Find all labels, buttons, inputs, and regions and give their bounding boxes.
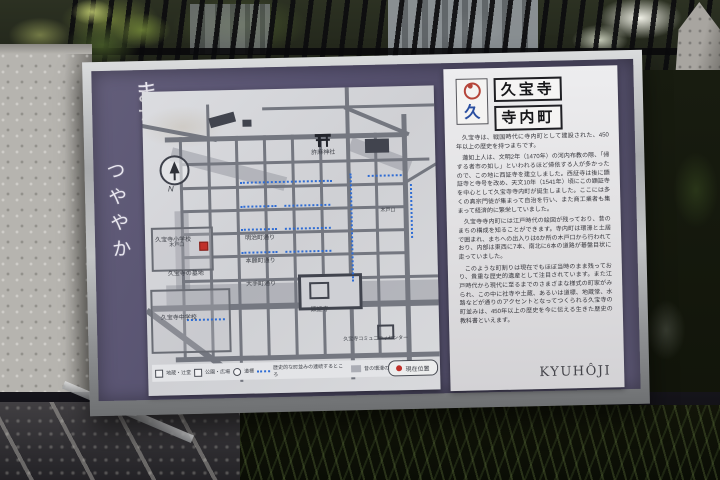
logo-kyu-character: 久 xyxy=(464,105,480,121)
description-text: 久宝寺は、戦国時代に寺内町として建設された、450年以上の歴史を持つまちです。 … xyxy=(456,131,613,329)
north-compass-icon xyxy=(159,155,190,186)
kyuhoji-logo-icon: 久 xyxy=(456,78,489,125)
granite-pillar-top xyxy=(0,44,92,54)
map-label-cemetery: 久宝寺の墓地 xyxy=(168,271,204,279)
current-location-legend: 現在位置 xyxy=(388,359,438,376)
map-street xyxy=(319,134,327,356)
current-location-label: 現在位置 xyxy=(405,363,429,373)
map-street xyxy=(374,133,382,355)
town-map: N 許麻神社 顕証寺 久宝寺小学校 久宝寺中学校 久宝寺の墓地 久宝寺コミュニテ… xyxy=(142,85,441,396)
historic-route-dots xyxy=(410,184,413,238)
temple-courtyard xyxy=(309,282,329,299)
paragraph-4: このような町割りは現在でもほぼ当時のまま残っており、貴重な歴史的遺産として注目さ… xyxy=(459,262,613,326)
map-label-junior-high: 久宝寺中学校 xyxy=(161,315,197,323)
map-street xyxy=(263,135,271,357)
legend-square-icon xyxy=(194,368,202,376)
legend-circle-icon xyxy=(233,367,241,375)
red-dot-icon xyxy=(396,365,402,371)
description-panel: 久 久宝寺 寺内町 久宝寺は、戦国時代に寺内町として建設された、450年以上の歴… xyxy=(443,65,624,391)
map-label-shrine: 許麻神社 xyxy=(311,150,335,157)
map-label-temple: 顕証寺 xyxy=(311,307,329,314)
building-block xyxy=(242,120,251,127)
building-block xyxy=(365,138,389,153)
paragraph-1: 久宝寺は、戦国時代に寺内町として建設された、450年以上の歴史を持つまちです。 xyxy=(456,131,609,152)
compass-n-label: N xyxy=(168,184,174,193)
map-legend: 地蔵・辻堂 公園・広場 道標 歴史的な町並みの連続するところ 昔の環濠の位置 xyxy=(152,359,402,382)
historic-route-dots xyxy=(368,174,402,177)
title-line-jinaimachi: 寺内町 xyxy=(494,105,563,131)
logo-red-swirl-icon xyxy=(463,82,480,99)
photo-scene: まち つややか xyxy=(0,0,720,480)
torii-icon xyxy=(315,134,331,147)
plants xyxy=(240,405,720,480)
legend-moat-patch-icon xyxy=(351,365,361,372)
building-block xyxy=(208,112,236,129)
map-street xyxy=(344,105,410,136)
legend-route-dots-icon xyxy=(257,370,270,372)
current-location-marker xyxy=(199,242,208,251)
map-label-street: 明治町通り xyxy=(245,235,275,243)
map-street xyxy=(401,114,412,364)
legend-item-historic-streets: 歴史的な町並みの連続するところ xyxy=(273,362,348,378)
map-label-gate: 木戸口 xyxy=(169,243,184,249)
map-street xyxy=(291,135,299,357)
romaji-footer: KYUHÔJI xyxy=(539,363,611,380)
calligraphy-tsuyayaka: つややか xyxy=(101,160,136,266)
map-label-street: 本願町通り xyxy=(246,258,276,266)
map-label-gate: 木戸口 xyxy=(380,208,395,214)
map-label-community-center: 久宝寺コミュニティセンター xyxy=(343,335,433,343)
legend-square-icon xyxy=(155,369,163,377)
title-line-kyuhoji: 久宝寺 xyxy=(494,77,563,103)
signboard-frame: まち つややか xyxy=(82,50,650,417)
legend-item-guidepost: 道標 xyxy=(244,368,254,375)
paragraph-3: 久宝寺寺内町には江戸時代の絵図が残っており、昔のまちの構成を知ることができます。… xyxy=(458,216,612,263)
signboard-mat: まち つややか xyxy=(91,59,640,401)
title-block: 久 久宝寺 寺内町 xyxy=(456,77,563,136)
legend-item-park: 公園・広場 xyxy=(205,368,230,376)
map-label-street: 大手町通り xyxy=(246,281,276,289)
paragraph-2: 蓮如上人は、文明2年（1470年）の河内布教の際、「帰する者市の如し」といわれる… xyxy=(456,152,610,216)
legend-item-jizo: 地蔵・辻堂 xyxy=(166,369,191,377)
